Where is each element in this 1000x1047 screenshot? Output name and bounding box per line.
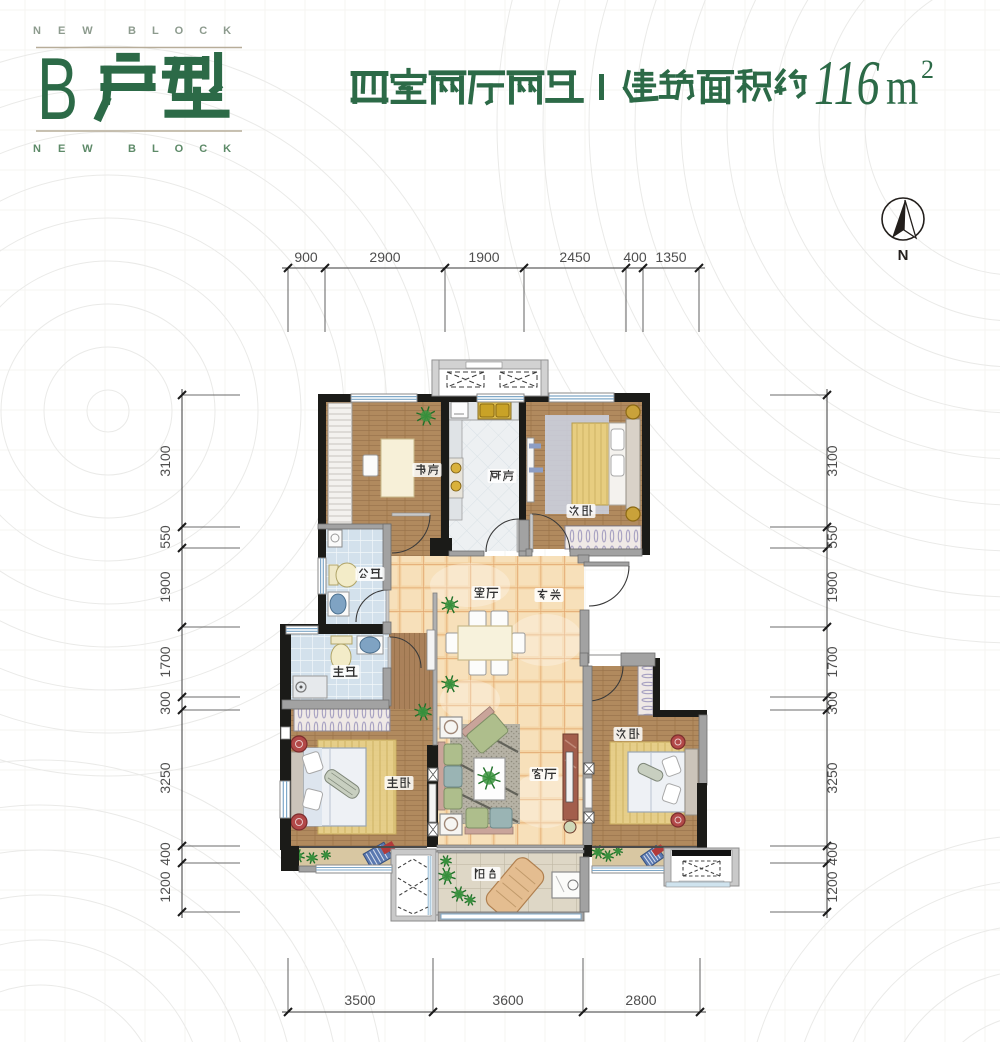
svg-text:1900: 1900 — [468, 249, 499, 265]
svg-text:B: B — [37, 40, 78, 138]
svg-text:3100: 3100 — [157, 445, 173, 476]
svg-text:1900: 1900 — [824, 571, 840, 602]
svg-text:N: N — [898, 247, 909, 264]
svg-text:116: 116 — [814, 48, 880, 119]
svg-text:400: 400 — [824, 842, 840, 866]
svg-text:3500: 3500 — [344, 992, 375, 1008]
svg-text:BLOCK: BLOCK — [128, 143, 247, 155]
svg-text:m: m — [886, 59, 918, 116]
svg-text:300: 300 — [824, 691, 840, 715]
svg-text:400: 400 — [623, 249, 647, 265]
svg-text:1350: 1350 — [655, 249, 686, 265]
svg-text:NEW: NEW — [33, 143, 110, 155]
svg-text:3100: 3100 — [824, 445, 840, 476]
svg-text:BLOCK: BLOCK — [128, 25, 247, 37]
svg-text:2450: 2450 — [559, 249, 590, 265]
svg-text:2900: 2900 — [369, 249, 400, 265]
svg-text:2: 2 — [921, 55, 934, 84]
svg-text:1200: 1200 — [824, 871, 840, 902]
svg-text:1700: 1700 — [157, 646, 173, 677]
svg-text:300: 300 — [157, 691, 173, 715]
svg-text:400: 400 — [157, 842, 173, 866]
svg-text:1900: 1900 — [157, 571, 173, 602]
svg-text:3250: 3250 — [157, 762, 173, 793]
svg-text:1200: 1200 — [157, 871, 173, 902]
svg-text:900: 900 — [294, 249, 318, 265]
svg-text:1700: 1700 — [824, 646, 840, 677]
svg-text:NEW: NEW — [33, 25, 110, 37]
svg-text:3250: 3250 — [824, 762, 840, 793]
svg-text:550: 550 — [157, 525, 173, 549]
svg-text:550: 550 — [824, 525, 840, 549]
svg-text:3600: 3600 — [492, 992, 523, 1008]
svg-text:2800: 2800 — [625, 992, 656, 1008]
